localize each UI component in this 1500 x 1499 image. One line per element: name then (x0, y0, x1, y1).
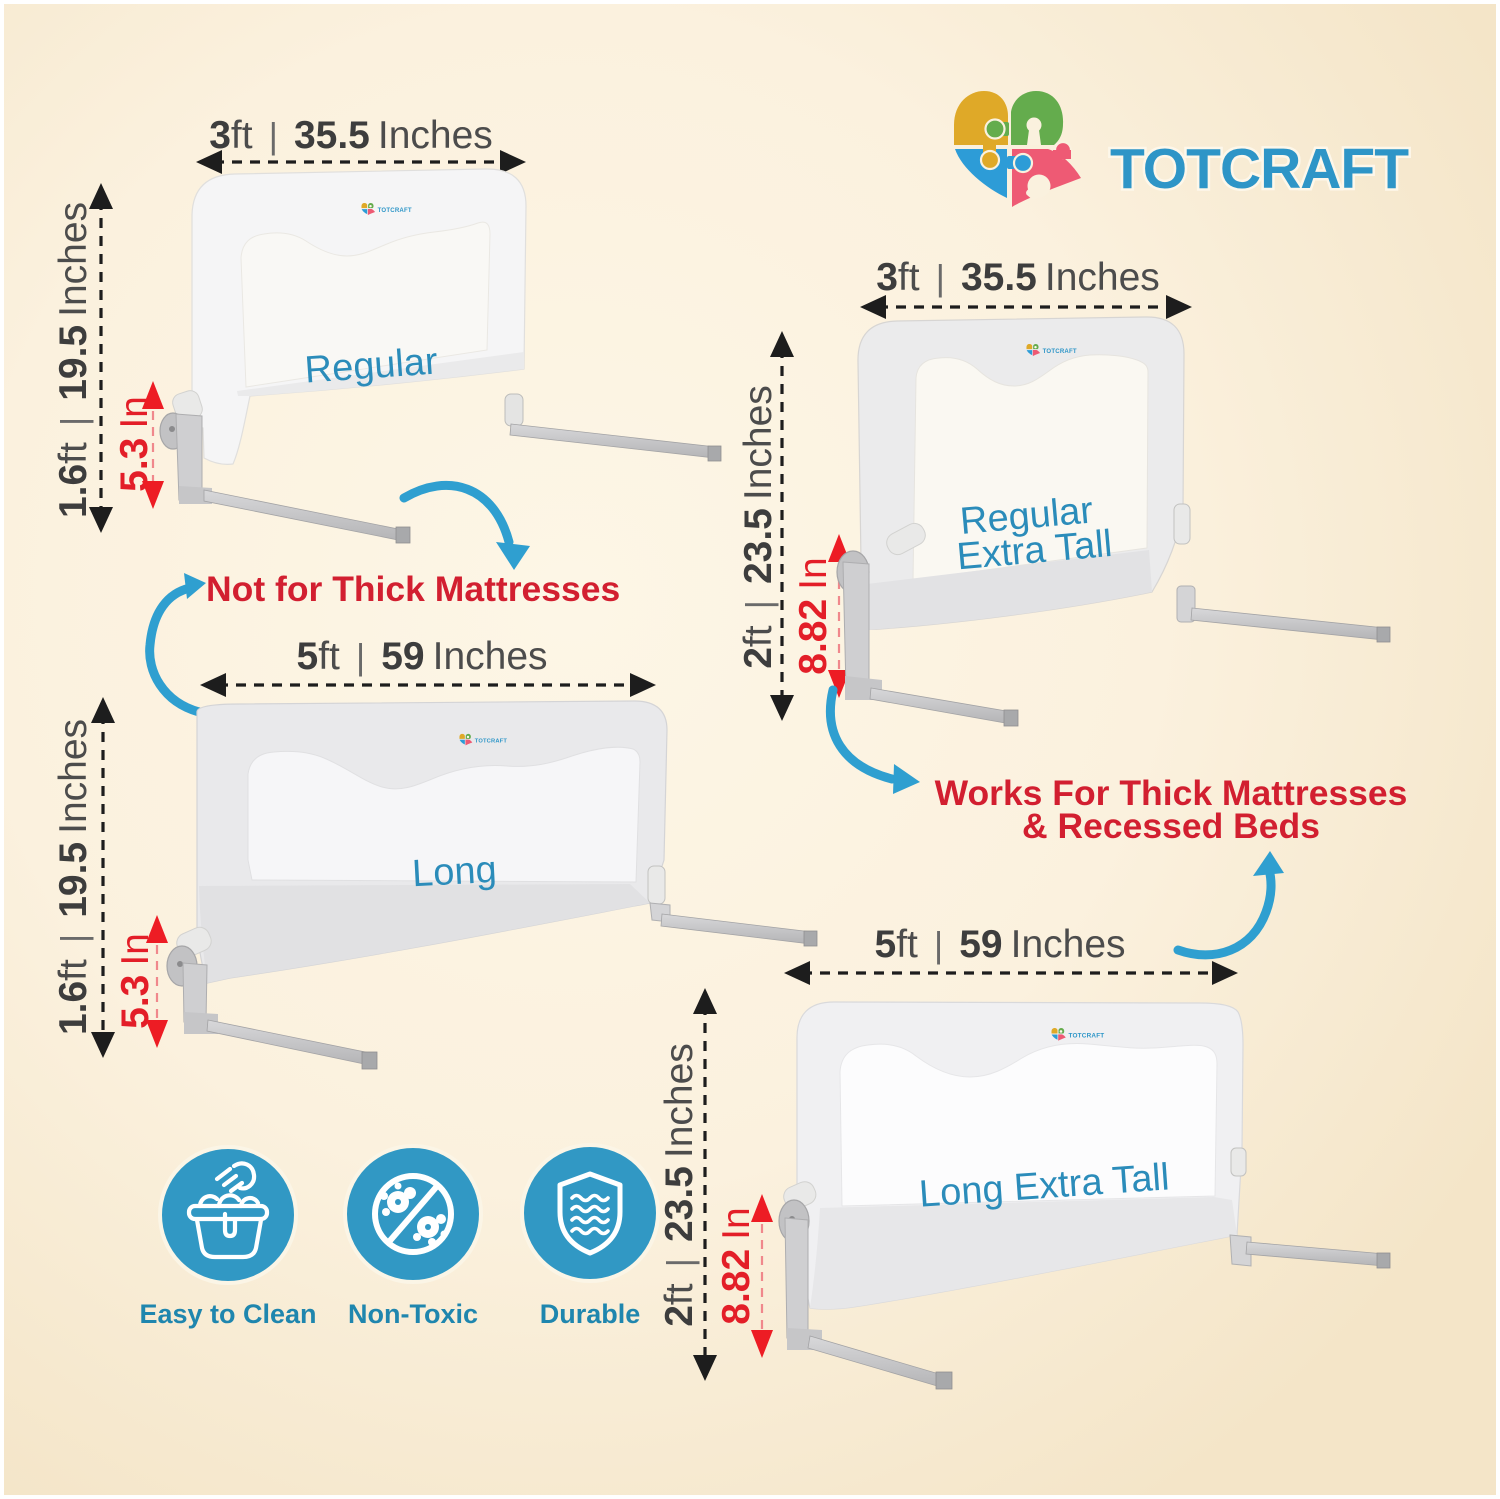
svg-text:5.3In: 5.3In (114, 933, 157, 1029)
svg-text:Long: Long (411, 849, 498, 895)
svg-text:Durable: Durable (540, 1299, 641, 1329)
svg-text:2ft|23.5Inches: 2ft|23.5Inches (658, 1043, 701, 1327)
svg-text:Not for Thick Mattresses: Not for Thick Mattresses (206, 569, 620, 609)
svg-text:1.6ft|19.5Inches: 1.6ft|19.5Inches (52, 719, 95, 1035)
svg-text:3ft|35.5Inches: 3ft|35.5Inches (209, 114, 493, 157)
svg-text:5ft|59Inches: 5ft|59Inches (874, 923, 1125, 966)
svg-text:8.82In: 8.82In (715, 1207, 758, 1324)
svg-text:Easy to Clean: Easy to Clean (139, 1299, 316, 1329)
svg-text:Non-Toxic: Non-Toxic (348, 1299, 478, 1329)
svg-text:1.6ft|19.5Inches: 1.6ft|19.5Inches (52, 202, 95, 518)
svg-text:TOTCRAFT: TOTCRAFT (1110, 137, 1409, 201)
svg-text:3ft|35.5Inches: 3ft|35.5Inches (876, 256, 1160, 299)
svg-text:2ft|23.5Inches: 2ft|23.5Inches (737, 385, 780, 669)
svg-text:& Recessed Beds: & Recessed Beds (1022, 806, 1320, 846)
svg-text:5ft|59Inches: 5ft|59Inches (296, 635, 547, 678)
svg-text:8.82In: 8.82In (792, 557, 835, 674)
svg-text:5.3In: 5.3In (113, 396, 156, 492)
